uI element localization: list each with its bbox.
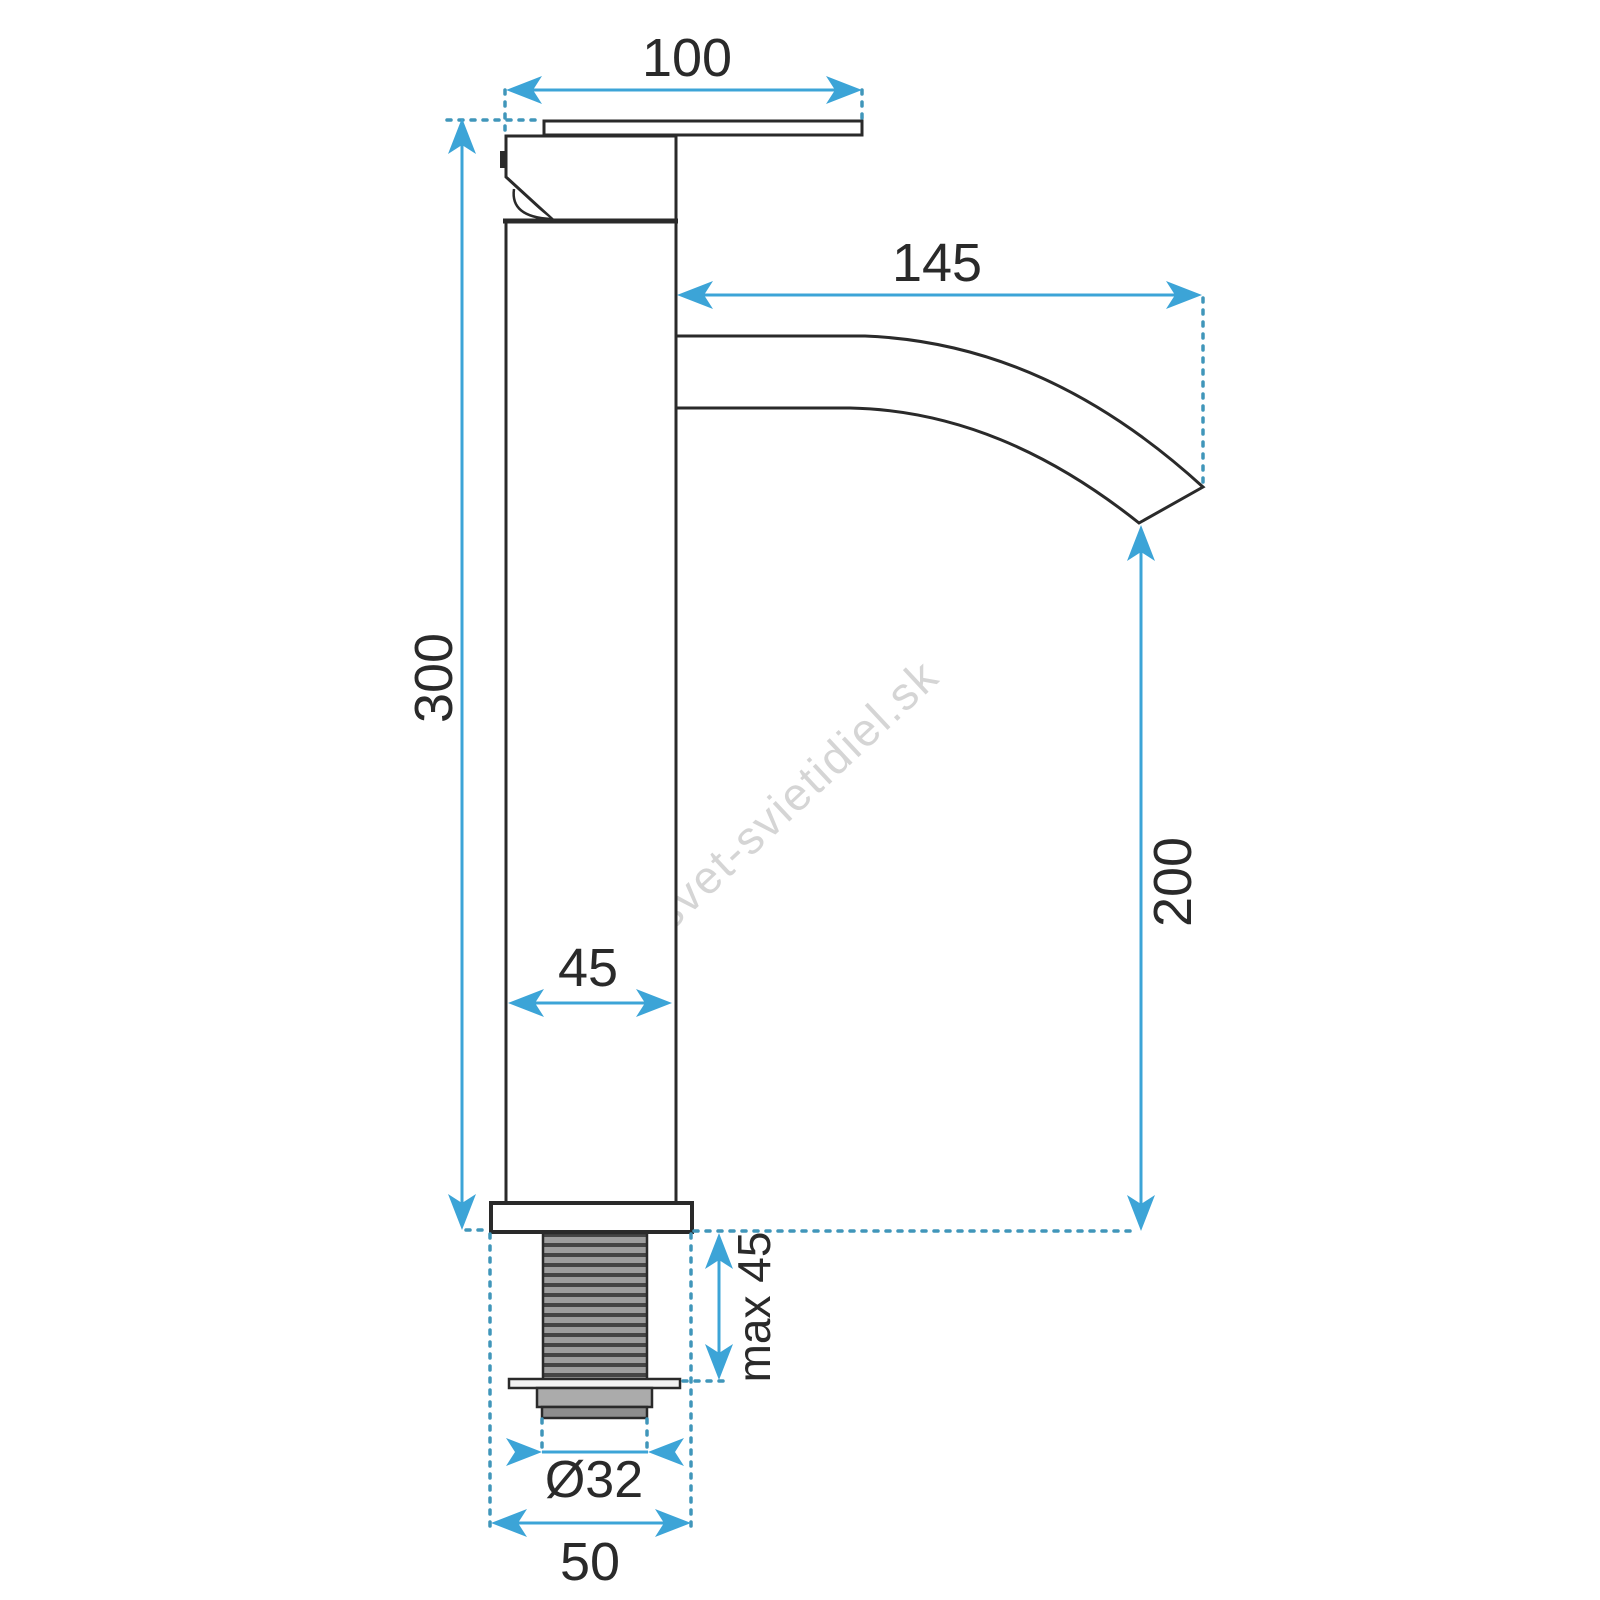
dim-base-diameter: 50 bbox=[491, 1509, 691, 1592]
dim-max-mount-label: max 45 bbox=[728, 1232, 780, 1383]
dim-spout-reach: 145 bbox=[677, 233, 1202, 309]
base-flange bbox=[491, 1203, 692, 1232]
mounting-nut-upper bbox=[537, 1388, 652, 1407]
dim-spout-height-label: 200 bbox=[1143, 837, 1203, 927]
arrow-left-icon bbox=[648, 1438, 684, 1466]
technical-drawing-page: svet-svietidiel.sk bbox=[0, 0, 1600, 1600]
handle-plate bbox=[544, 121, 862, 135]
dim-total-height-label: 300 bbox=[404, 633, 464, 723]
dim-body-diameter-label: 45 bbox=[558, 938, 618, 998]
faucet-technical-drawing: svet-svietidiel.sk bbox=[0, 0, 1600, 1600]
spout bbox=[677, 336, 1203, 523]
dim-total-height: 300 bbox=[404, 118, 476, 1230]
mounting-nut-lower bbox=[542, 1407, 647, 1418]
dim-spout-reach-label: 145 bbox=[892, 233, 982, 293]
arrow-right-icon bbox=[506, 1438, 542, 1466]
watermark: svet-svietidiel.sk bbox=[642, 649, 949, 940]
dim-handle-width-label: 100 bbox=[642, 28, 732, 88]
dim-thread-diameter-label: Ø32 bbox=[545, 1451, 643, 1509]
lever-pin bbox=[500, 151, 507, 168]
faucet-body bbox=[506, 222, 676, 1203]
mounting-washer bbox=[509, 1379, 680, 1388]
dim-handle-width: 100 bbox=[506, 28, 862, 104]
dim-max-mount-thickness: max 45 bbox=[705, 1232, 780, 1383]
dim-thread-diameter: Ø32 bbox=[506, 1438, 684, 1509]
dim-base-diameter-label: 50 bbox=[560, 1532, 620, 1592]
dim-spout-height: 200 bbox=[1127, 525, 1203, 1231]
threaded-shank bbox=[543, 1233, 647, 1380]
